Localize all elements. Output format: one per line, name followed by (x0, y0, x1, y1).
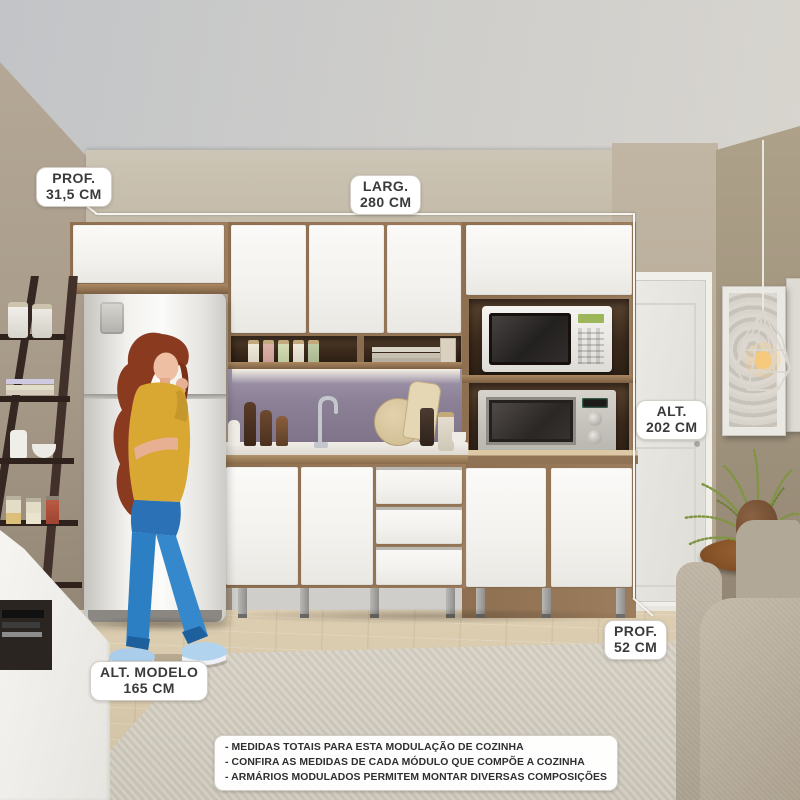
notes-box: - MEDIDAS TOTAIS PARA ESTA MODULAÇÃO DE … (214, 735, 618, 791)
room-scene: PROF. 31,5 CM LARG. 280 CM ALT. 202 CM P… (0, 0, 800, 800)
shelf-board-upright (440, 338, 456, 364)
canister (8, 302, 28, 338)
tower-counter-strip (458, 450, 638, 464)
label-depth-bottom-title: PROF. (614, 624, 657, 640)
height-measure-line (633, 213, 635, 599)
shelf-books (372, 347, 440, 352)
media-device (2, 610, 44, 618)
drawer-handle (376, 547, 462, 550)
faucet (306, 392, 350, 448)
microwave-steel-display (582, 398, 608, 408)
label-width-title: LARG. (360, 179, 411, 195)
base-cabinet-door-1 (226, 467, 298, 585)
countertop-wood-edge (218, 455, 468, 464)
note-line: - ARMÁRIOS MODULADOS PERMITEM MONTAR DIV… (225, 771, 607, 786)
label-depth-bottom: PROF. 52 CM (604, 620, 667, 660)
drawer-3 (376, 547, 462, 585)
tv-stand-open-shelf (0, 600, 52, 670)
over-fridge-door (73, 225, 224, 283)
glass-grinder (420, 408, 434, 446)
drawer-handle (376, 507, 462, 510)
microwave-white-window (489, 313, 571, 365)
label-depth-top-value: 31,5 CM (46, 187, 102, 203)
label-model-height-title: ALT. MODELO (100, 665, 198, 681)
white-jug (10, 430, 27, 458)
drawer-handle (376, 467, 462, 470)
over-fridge-bottom (70, 284, 228, 294)
label-model-height-value: 165 CM (100, 681, 198, 697)
red-jar (46, 496, 59, 524)
note-line: - MEDIDAS TOTAIS PARA ESTA MODULAÇÃO DE … (225, 741, 607, 756)
label-width-value: 280 CM (360, 195, 411, 211)
microwave-steel-knob (588, 412, 602, 426)
glass-jar (26, 498, 41, 524)
ladder-board (0, 396, 70, 402)
pepper-mill (276, 416, 288, 446)
label-height-value: 202 CM (646, 420, 697, 436)
label-depth-bottom-value: 52 CM (614, 640, 657, 656)
media-device (2, 632, 42, 637)
microwave-white-display (578, 314, 604, 323)
open-shelf-bottom (228, 362, 464, 369)
label-model-height: ALT. MODELO 165 CM (90, 661, 208, 701)
microwave-white-keypad (578, 328, 604, 364)
microwave-white (482, 306, 612, 372)
microwave-steel (478, 390, 616, 452)
woman-leg-straight (126, 532, 156, 650)
tower-lower-door-left (466, 468, 546, 587)
tower-lower-door-right (551, 468, 632, 587)
label-depth-top: PROF. 31,5 CM (36, 167, 112, 207)
base-cabinet-door-2 (301, 467, 373, 585)
pepper-mill (260, 410, 272, 446)
upper-cabinet-door-1 (231, 225, 306, 333)
book-stack (6, 379, 54, 384)
cabinet-floor-shadow (220, 608, 640, 624)
bulb (754, 351, 772, 369)
label-width: LARG. 280 CM (350, 175, 421, 215)
tower-top-door (466, 225, 632, 295)
woman-hips (131, 500, 181, 536)
upper-cabinet-door-3 (387, 225, 461, 333)
upper-cabinet-door-2 (309, 225, 384, 333)
woman-figure (82, 320, 234, 672)
media-device (2, 622, 40, 628)
open-shelf-divider (357, 336, 364, 362)
pepper-mill (244, 402, 256, 446)
label-depth-top-title: PROF. (46, 171, 102, 187)
ladder-board (0, 458, 74, 464)
glass-jar (6, 496, 21, 524)
pendant-lamp (724, 140, 800, 405)
canister (32, 304, 52, 338)
tower-shelf-strip (462, 375, 636, 383)
microwave-steel-knob (588, 430, 602, 444)
label-height: ALT. 202 CM (636, 400, 707, 440)
note-line: - CONFIRA AS MEDIDAS DE CADA MÓDULO QUE … (225, 756, 607, 771)
woman-face (154, 353, 179, 382)
microwave-steel-window (486, 397, 576, 445)
drawer-2 (376, 507, 462, 544)
drawer-1 (376, 467, 462, 504)
label-height-title: ALT. (646, 404, 697, 420)
sofa-seat-cushion (700, 598, 800, 800)
